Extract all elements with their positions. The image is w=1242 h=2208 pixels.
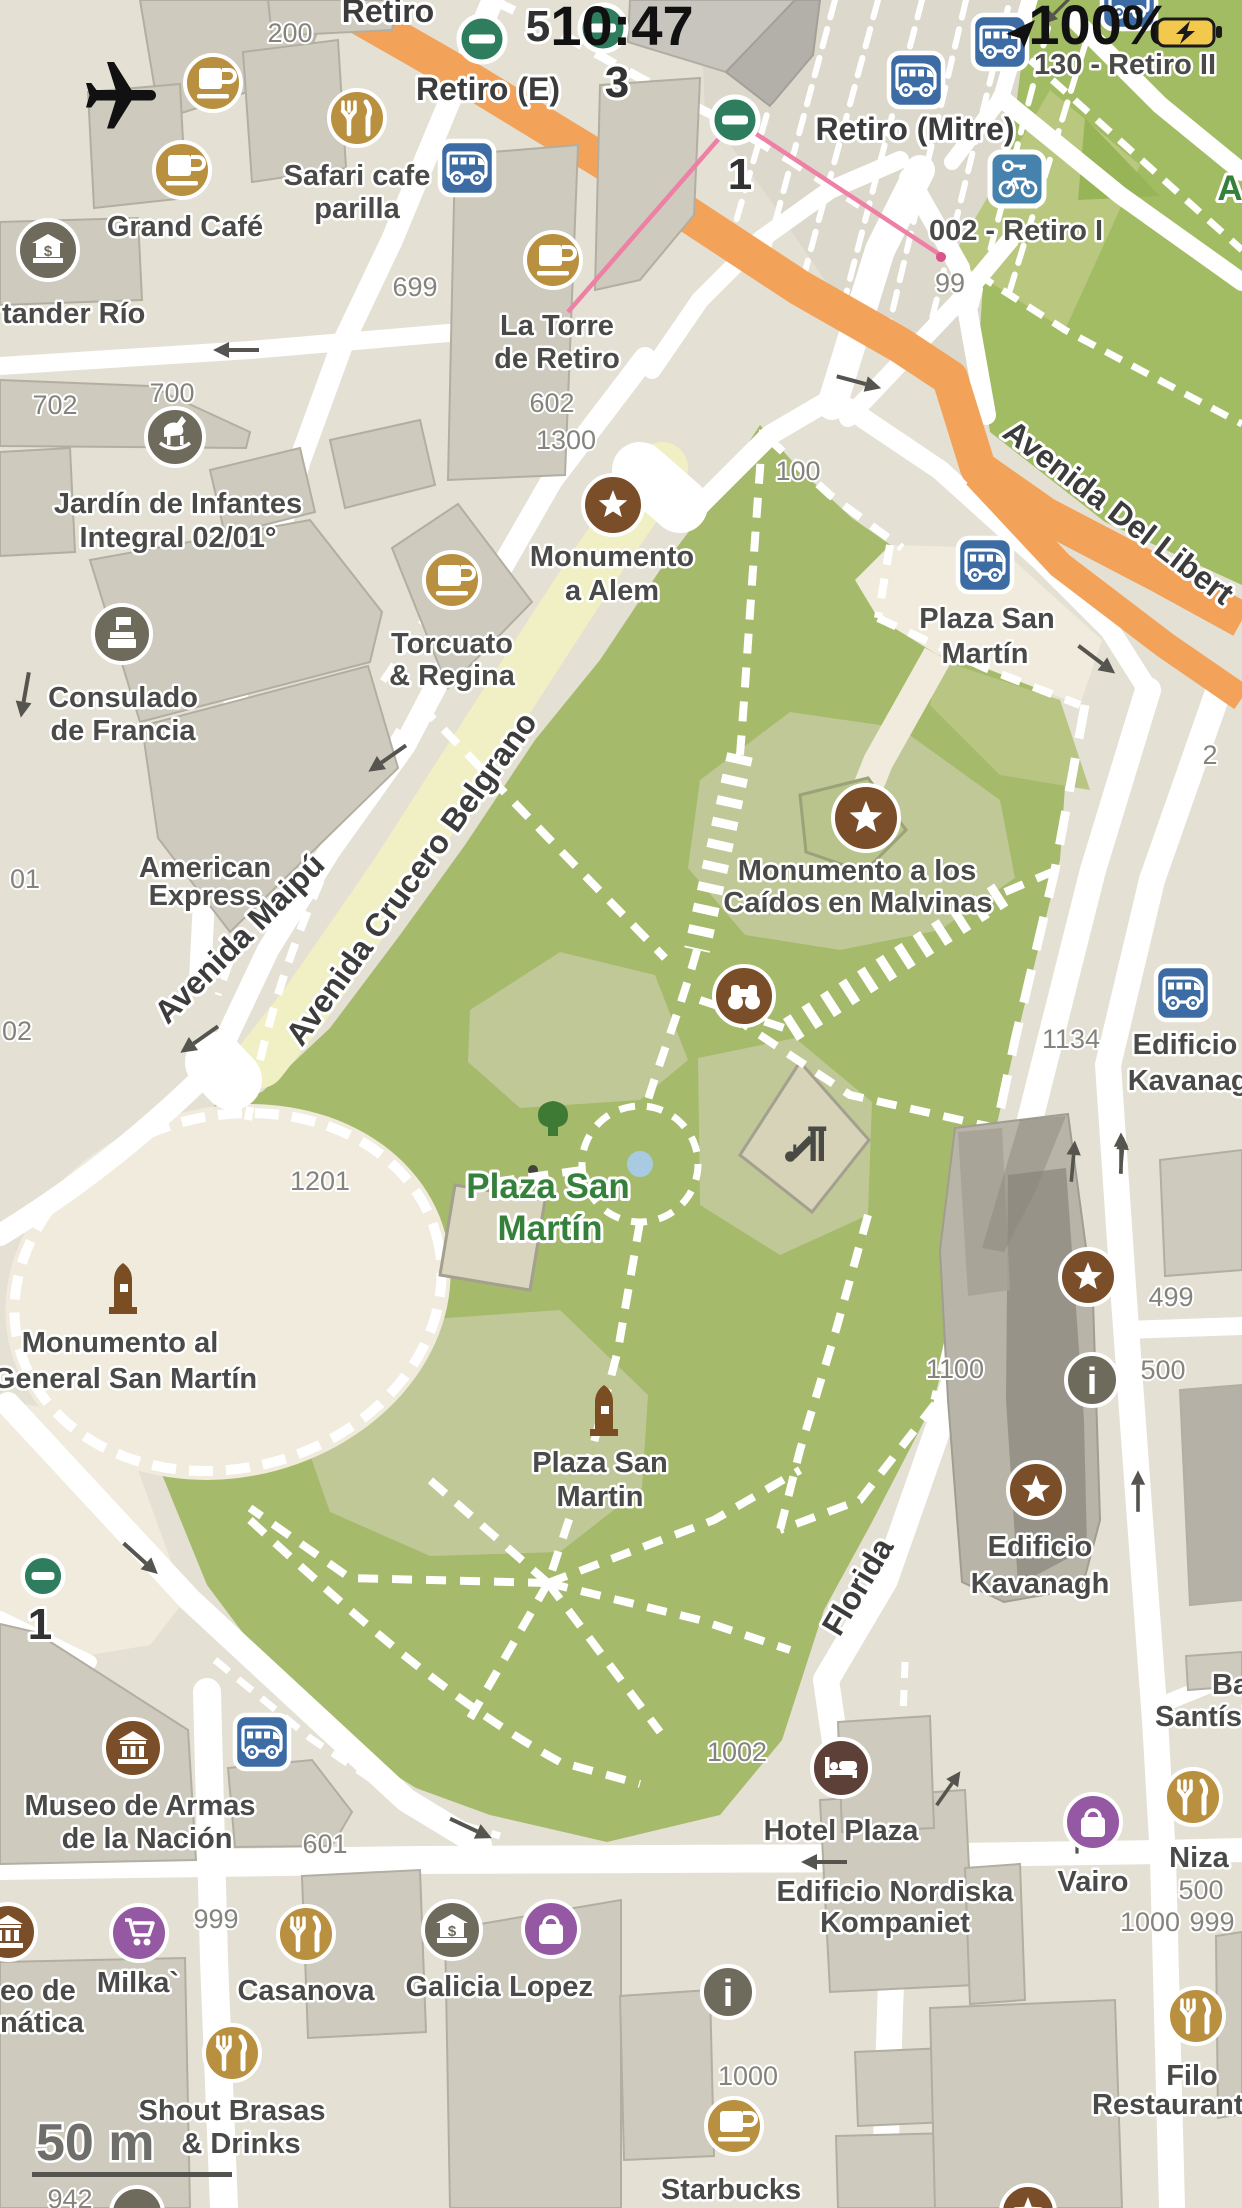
svg-text:1300: 1300: [536, 425, 596, 455]
svg-text:Plaza San: Plaza San: [466, 1167, 629, 1206]
svg-text:Martín: Martín: [942, 638, 1029, 670]
svg-text:499: 499: [1148, 1282, 1193, 1312]
svg-text:Retiro: Retiro: [342, 0, 434, 29]
svg-text:Plaza San: Plaza San: [919, 603, 1054, 635]
svg-text:1: 1: [28, 1600, 52, 1649]
svg-text:999: 999: [193, 1904, 238, 1934]
svg-text:Edificio Nordiska: Edificio Nordiska: [777, 1876, 1015, 1908]
svg-text:Caídos en Malvinas: Caídos en Malvinas: [723, 887, 992, 919]
svg-text:Integral 02/01°: Integral 02/01°: [80, 522, 277, 554]
svg-text:1100: 1100: [926, 1354, 984, 1384]
svg-text:Retiro (Mitre): Retiro (Mitre): [815, 111, 1014, 147]
svg-text:3: 3: [605, 58, 629, 107]
svg-text:2: 2: [1202, 740, 1217, 770]
svg-text:5: 5: [526, 2, 550, 51]
svg-text:702: 702: [32, 390, 77, 420]
svg-text:parilla: parilla: [314, 193, 400, 225]
svg-text:Grand Café: Grand Café: [107, 211, 263, 243]
svg-text:602: 602: [529, 388, 574, 418]
svg-text:Consulado: Consulado: [48, 682, 198, 714]
svg-text:Monumento al: Monumento al: [22, 1327, 219, 1359]
svg-text:Milka`: Milka`: [97, 1967, 179, 1999]
svg-text:nática: nática: [0, 2007, 85, 2039]
svg-text:Express: Express: [149, 880, 262, 912]
svg-text:1134: 1134: [1042, 1024, 1100, 1054]
svg-text:Restaurant: Restaurant: [1092, 2089, 1242, 2121]
svg-text:Museo de Armas: Museo de Armas: [25, 1790, 256, 1822]
svg-text:700: 700: [149, 378, 194, 408]
svg-text:Santísim: Santísim: [1155, 1701, 1242, 1733]
svg-text:200: 200: [267, 18, 312, 48]
svg-text:01: 01: [10, 864, 40, 894]
svg-text:Kompaniet: Kompaniet: [820, 1907, 970, 1939]
svg-text:Filo: Filo: [1166, 2060, 1218, 2092]
svg-text:& Regina: & Regina: [389, 660, 516, 692]
svg-text:A: A: [1217, 169, 1242, 208]
svg-text:Edificio: Edificio: [988, 1531, 1093, 1563]
svg-text:Safari cafe: Safari cafe: [284, 160, 431, 192]
svg-text:La Torre: La Torre: [500, 310, 614, 342]
svg-text:eo de: eo de: [0, 1975, 76, 2007]
svg-text:Kavanagh: Kavanagh: [1128, 1065, 1242, 1097]
svg-text:1002: 1002: [707, 1737, 767, 1767]
svg-text:1000: 1000: [1120, 1907, 1180, 1937]
svg-text:1: 1: [728, 150, 752, 199]
svg-text:500: 500: [1178, 1875, 1223, 1905]
svg-text:Casanova: Casanova: [237, 1975, 375, 2007]
svg-text:500: 500: [1140, 1355, 1185, 1385]
svg-text:Edificio: Edificio: [1133, 1029, 1238, 1061]
svg-text:tander Río: tander Río: [2, 298, 145, 330]
svg-text:Niza: Niza: [1169, 1842, 1230, 1874]
svg-text:Retiro (E): Retiro (E): [416, 71, 560, 107]
svg-text:02: 02: [2, 1016, 32, 1046]
svg-text:a Alem: a Alem: [565, 575, 659, 607]
svg-text:10:47: 10:47: [550, 0, 693, 57]
svg-text:Torcuato: Torcuato: [391, 628, 513, 660]
svg-text:Starbucks: Starbucks: [661, 2174, 801, 2206]
svg-text:i: i: [1087, 1361, 1098, 1403]
svg-text:Monumento: Monumento: [530, 541, 694, 573]
svg-text:$: $: [448, 1923, 457, 1940]
svg-text:de Retiro: de Retiro: [494, 343, 620, 375]
svg-text:$: $: [44, 243, 53, 260]
svg-text:Lopez: Lopez: [509, 1971, 593, 2003]
svg-text:General San Martín: General San Martín: [0, 1363, 257, 1395]
svg-text:Galicia: Galicia: [405, 1971, 501, 2003]
svg-text:& Drinks: & Drinks: [181, 2128, 300, 2160]
svg-text:Jardín de Infantes: Jardín de Infantes: [54, 488, 302, 520]
svg-text:99: 99: [935, 268, 965, 298]
svg-text:Martin: Martin: [557, 1481, 644, 1513]
svg-text:Shout Brasas: Shout Brasas: [139, 2095, 326, 2127]
svg-text:Martín: Martín: [498, 1209, 603, 1248]
svg-text:942: 942: [47, 2184, 92, 2208]
svg-text:Plaza San: Plaza San: [532, 1447, 667, 1479]
svg-text:50 m: 50 m: [36, 2114, 155, 2172]
svg-text:999: 999: [1189, 1907, 1234, 1937]
svg-text:de Francia: de Francia: [50, 715, 196, 747]
svg-text:Kavanagh: Kavanagh: [971, 1568, 1110, 1600]
svg-text:100%: 100%: [1028, 0, 1171, 56]
svg-text:Ba: Ba: [1212, 1669, 1242, 1701]
svg-text:Monumento a los: Monumento a los: [738, 855, 976, 887]
svg-text:1000: 1000: [718, 2061, 778, 2091]
svg-text:Hotel Plaza: Hotel Plaza: [764, 1815, 920, 1847]
svg-text:601: 601: [302, 1829, 347, 1859]
svg-text:i: i: [723, 1973, 734, 2015]
svg-text:de la Nación: de la Nación: [62, 1823, 233, 1855]
svg-text:100: 100: [775, 456, 820, 486]
svg-text:1201: 1201: [290, 1166, 350, 1196]
svg-text:002 - Retiro I: 002 - Retiro I: [929, 215, 1103, 247]
svg-text:Vairo: Vairo: [1058, 1866, 1129, 1898]
svg-text:699: 699: [392, 272, 437, 302]
